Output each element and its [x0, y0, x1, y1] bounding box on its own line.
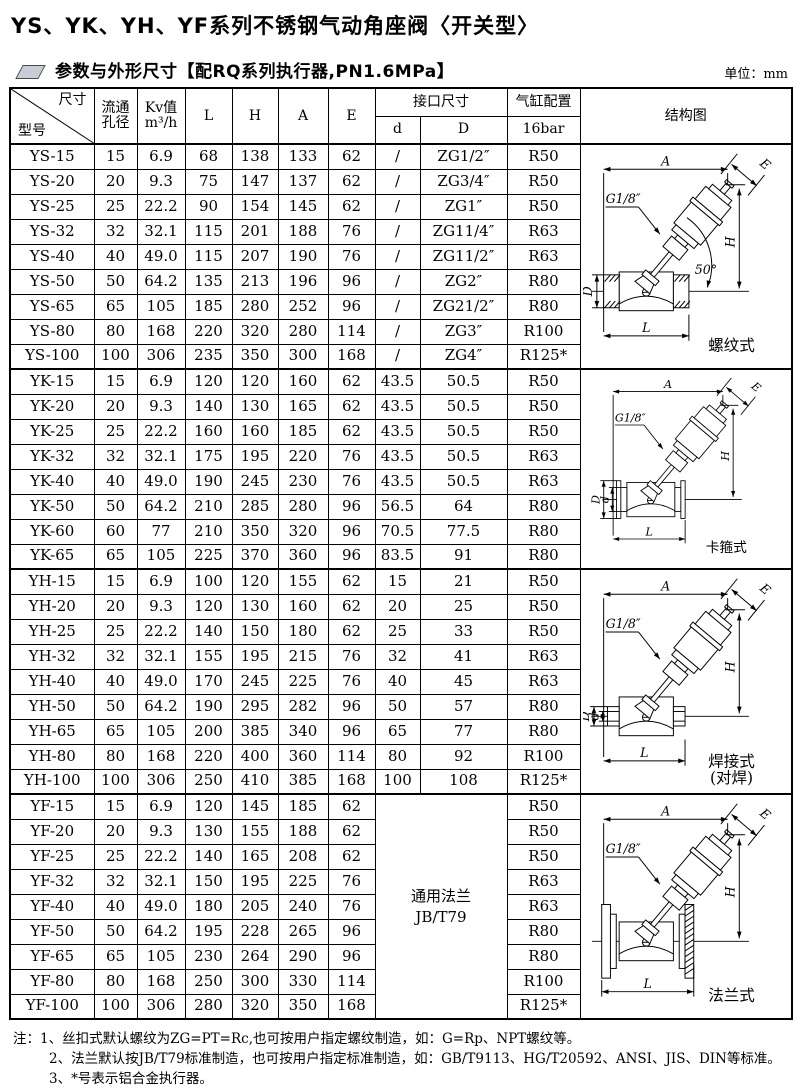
svg-text:L: L [641, 320, 650, 335]
header-cylinder: 气缸配置 [507, 88, 580, 116]
value-cell: 137 [278, 169, 328, 194]
value-cell: 130 [232, 394, 278, 419]
table-row: YS-15156.96813813362/ZG1/2″R50AEHG1/8″50… [10, 144, 792, 169]
value-cell: 65 [375, 719, 420, 744]
value-cell: 20 [94, 394, 137, 419]
value-cell: 15 [94, 144, 137, 169]
value-cell: 96 [328, 269, 375, 294]
value-cell: 350 [232, 344, 278, 369]
value-cell: 32 [94, 869, 137, 894]
value-cell: 76 [328, 894, 375, 919]
value-cell: 190 [278, 244, 328, 269]
value-cell: 22.2 [137, 419, 185, 444]
model-cell: YK-40 [10, 469, 94, 494]
model-cell: YS-80 [10, 319, 94, 344]
value-cell: 180 [185, 894, 232, 919]
value-cell: 350 [278, 994, 328, 1019]
value-cell: 80 [94, 969, 137, 994]
value-cell: 160 [185, 419, 232, 444]
svg-text:d: d [598, 496, 611, 503]
value-cell: 230 [185, 944, 232, 969]
value-cell: 205 [232, 894, 278, 919]
value-cell: 50 [94, 919, 137, 944]
value-cell: 385 [278, 769, 328, 794]
merged-flange-line: JB/T79 [376, 907, 507, 927]
value-cell: 250 [185, 969, 232, 994]
value-cell: ZG4″ [420, 344, 507, 369]
value-cell: 320 [232, 319, 278, 344]
value-cell: R80 [507, 944, 580, 969]
value-cell: / [375, 244, 420, 269]
value-cell: 96 [328, 519, 375, 544]
value-cell: 80 [375, 744, 420, 769]
value-cell: 133 [278, 144, 328, 169]
parallelogram-icon [15, 65, 45, 79]
value-cell: 320 [278, 519, 328, 544]
value-cell: 62 [328, 394, 375, 419]
value-cell: 114 [328, 969, 375, 994]
value-cell: R63 [507, 219, 580, 244]
value-cell: 360 [278, 544, 328, 569]
value-cell: R80 [507, 294, 580, 319]
value-cell: 49.0 [137, 244, 185, 269]
value-cell: 76 [328, 219, 375, 244]
value-cell: 155 [232, 819, 278, 844]
header-model-size-cell: 尺寸 型号 [10, 88, 94, 144]
value-cell: 165 [278, 394, 328, 419]
value-cell: 306 [137, 344, 185, 369]
value-cell: 60 [94, 519, 137, 544]
valve-drawing: AEHG1/8″DdL焊接式(对焊) [583, 571, 789, 788]
value-cell: 300 [278, 344, 328, 369]
value-cell: ZG3/4″ [420, 169, 507, 194]
value-cell: R50 [507, 794, 580, 819]
value-cell: 70.5 [375, 519, 420, 544]
structure-diagram-flange: AEHG1/8″L法兰式 [580, 794, 792, 1019]
model-cell: YK-65 [10, 544, 94, 569]
value-cell: 6.9 [137, 569, 185, 594]
value-cell: 150 [185, 869, 232, 894]
value-cell: 32.1 [137, 869, 185, 894]
header-flow: 流通 孔径 [94, 88, 137, 144]
header-model-label: 型号 [18, 124, 46, 139]
svg-text:(对焊): (对焊) [710, 769, 753, 787]
value-cell: 168 [328, 769, 375, 794]
value-cell: 330 [278, 969, 328, 994]
value-cell: 49.0 [137, 669, 185, 694]
value-cell: 80 [94, 744, 137, 769]
value-cell: 9.3 [137, 169, 185, 194]
value-cell: 76 [328, 669, 375, 694]
model-cell: YK-32 [10, 444, 94, 469]
value-cell: R63 [507, 644, 580, 669]
value-cell: 62 [328, 419, 375, 444]
svg-text:L: L [639, 745, 648, 760]
model-cell: YF-50 [10, 919, 94, 944]
value-cell: 196 [278, 269, 328, 294]
value-cell: 15 [94, 569, 137, 594]
value-cell: 65 [94, 544, 137, 569]
model-cell: YF-15 [10, 794, 94, 819]
value-cell: 154 [232, 194, 278, 219]
header-size-label: 尺寸 [59, 93, 87, 108]
value-cell: 100 [185, 569, 232, 594]
value-cell: 21 [420, 569, 507, 594]
value-cell: 385 [232, 719, 278, 744]
value-cell: 25 [94, 844, 137, 869]
value-cell: 90 [185, 194, 232, 219]
value-cell: 50 [94, 694, 137, 719]
value-cell: 96 [328, 919, 375, 944]
value-cell: 96 [328, 494, 375, 519]
value-cell: 195 [232, 444, 278, 469]
model-cell: YF-65 [10, 944, 94, 969]
value-cell: 62 [328, 844, 375, 869]
value-cell: ZG21/2″ [420, 294, 507, 319]
model-cell: YH-50 [10, 694, 94, 719]
value-cell: 120 [185, 794, 232, 819]
value-cell: 25 [94, 619, 137, 644]
value-cell: 64 [420, 494, 507, 519]
value-cell: 120 [185, 594, 232, 619]
value-cell: 105 [137, 544, 185, 569]
table-row: YH-15156.9100120155621521R50AEHG1/8″DdL焊… [10, 569, 792, 594]
value-cell: 225 [278, 869, 328, 894]
value-cell: 32 [94, 644, 137, 669]
model-cell: YH-100 [10, 769, 94, 794]
value-cell: 370 [232, 544, 278, 569]
value-cell: / [375, 269, 420, 294]
value-cell: 15 [94, 794, 137, 819]
value-cell: 155 [278, 569, 328, 594]
value-cell: 147 [232, 169, 278, 194]
value-cell: R80 [507, 494, 580, 519]
value-cell: 350 [232, 519, 278, 544]
value-cell: 210 [185, 494, 232, 519]
svg-text:A: A [663, 378, 672, 391]
value-cell: 264 [232, 944, 278, 969]
svg-text:L: L [644, 526, 652, 539]
header-H: H [232, 88, 278, 144]
value-cell: 360 [278, 744, 328, 769]
value-cell: 43.5 [375, 469, 420, 494]
value-cell: 130 [185, 819, 232, 844]
value-cell: 120 [185, 369, 232, 394]
model-cell: YS-65 [10, 294, 94, 319]
value-cell: 64.2 [137, 919, 185, 944]
model-cell: YS-100 [10, 344, 94, 369]
value-cell: R50 [507, 394, 580, 419]
value-cell: R50 [507, 369, 580, 394]
value-cell: 62 [328, 819, 375, 844]
value-cell: R63 [507, 869, 580, 894]
value-cell: 120 [232, 569, 278, 594]
value-cell: 100 [94, 769, 137, 794]
value-cell: 100 [94, 994, 137, 1019]
value-cell: R63 [507, 244, 580, 269]
value-cell: 68 [185, 144, 232, 169]
value-cell: 175 [185, 444, 232, 469]
value-cell: 100 [94, 344, 137, 369]
structure-diagram-weld: AEHG1/8″DdL焊接式(对焊) [580, 569, 792, 794]
value-cell: 228 [232, 919, 278, 944]
header-L: L [185, 88, 232, 144]
value-cell: ZG3″ [420, 319, 507, 344]
value-cell: 50.5 [420, 419, 507, 444]
value-cell: 165 [232, 844, 278, 869]
value-cell: / [375, 319, 420, 344]
value-cell: 160 [278, 369, 328, 394]
value-cell: 210 [185, 519, 232, 544]
value-cell: R50 [507, 144, 580, 169]
value-cell: R50 [507, 819, 580, 844]
value-cell: 220 [278, 444, 328, 469]
value-cell: 50 [94, 494, 137, 519]
value-cell: 130 [232, 594, 278, 619]
value-cell: 168 [328, 994, 375, 1019]
svg-text:H: H [719, 451, 732, 462]
value-cell: 306 [137, 994, 185, 1019]
value-cell: 96 [328, 544, 375, 569]
value-cell: 245 [232, 469, 278, 494]
value-cell: / [375, 219, 420, 244]
model-cell: YH-32 [10, 644, 94, 669]
value-cell: 145 [278, 194, 328, 219]
value-cell: 50.5 [420, 469, 507, 494]
value-cell: 43.5 [375, 444, 420, 469]
value-cell: R80 [507, 544, 580, 569]
value-cell: 9.3 [137, 394, 185, 419]
value-cell: 185 [278, 794, 328, 819]
value-cell: 185 [278, 419, 328, 444]
value-cell: 32.1 [137, 444, 185, 469]
svg-text:L: L [642, 976, 651, 991]
value-cell: 50 [375, 694, 420, 719]
value-cell: R80 [507, 694, 580, 719]
header-A: A [278, 88, 328, 144]
value-cell: 76 [328, 244, 375, 269]
value-cell: ZG11/4″ [420, 219, 507, 244]
value-cell: R50 [507, 419, 580, 444]
value-cell: 64.2 [137, 694, 185, 719]
value-cell: 25 [420, 594, 507, 619]
model-cell: YH-25 [10, 619, 94, 644]
header-port-size: 接口尺寸 [375, 88, 507, 116]
value-cell: R63 [507, 894, 580, 919]
value-cell: 96 [328, 694, 375, 719]
value-cell: 32 [94, 444, 137, 469]
value-cell: 32 [375, 644, 420, 669]
svg-text:H: H [722, 661, 737, 674]
value-cell: 188 [278, 819, 328, 844]
value-cell: 65 [94, 944, 137, 969]
model-cell: YF-32 [10, 869, 94, 894]
value-cell: 62 [328, 794, 375, 819]
value-cell: R50 [507, 594, 580, 619]
value-cell: 62 [328, 594, 375, 619]
model-cell: YF-100 [10, 994, 94, 1019]
value-cell: 41 [420, 644, 507, 669]
value-cell: R80 [507, 719, 580, 744]
note-line: 2、法兰默认按JB/T79标准制造，也可按用户指定标准制造，如：GB/T9113… [13, 1049, 791, 1069]
value-cell: 168 [137, 969, 185, 994]
model-cell: YH-80 [10, 744, 94, 769]
value-cell: 22.2 [137, 619, 185, 644]
value-cell: 290 [278, 944, 328, 969]
header-kv-line2: m³/h [145, 115, 178, 131]
value-cell: 252 [278, 294, 328, 319]
value-cell: 100 [375, 769, 420, 794]
merged-flange-cell: 通用法兰JB/T79 [375, 794, 507, 1019]
value-cell: R125* [507, 769, 580, 794]
header-flow-line1: 流通 [102, 100, 130, 116]
value-cell: 33 [420, 619, 507, 644]
value-cell: 280 [278, 494, 328, 519]
value-cell: 96 [328, 944, 375, 969]
value-cell: 160 [232, 419, 278, 444]
value-cell: R100 [507, 969, 580, 994]
model-cell: YK-25 [10, 419, 94, 444]
value-cell: 32 [94, 219, 137, 244]
value-cell: 207 [232, 244, 278, 269]
value-cell: R50 [507, 194, 580, 219]
value-cell: R100 [507, 744, 580, 769]
svg-text:E: E [748, 379, 763, 395]
value-cell: 155 [185, 644, 232, 669]
value-cell: 235 [185, 344, 232, 369]
value-cell: 225 [185, 544, 232, 569]
model-cell: YS-40 [10, 244, 94, 269]
svg-text:螺纹式: 螺纹式 [708, 337, 755, 355]
svg-text:法兰式: 法兰式 [708, 987, 755, 1005]
value-cell: 77.5 [420, 519, 507, 544]
value-cell: 22.2 [137, 844, 185, 869]
value-cell: 220 [185, 319, 232, 344]
table-row: YK-15156.91201201606243.550.5R50AEHG1/8″… [10, 369, 792, 394]
value-cell: 230 [278, 469, 328, 494]
header-flow-line2: 孔径 [102, 115, 130, 131]
header-row-1: 尺寸 型号 流通 孔径 Kv值 m³/h L H A E 接口尺寸 气缸配置 结… [10, 88, 792, 116]
value-cell: 168 [137, 319, 185, 344]
value-cell: R63 [507, 469, 580, 494]
model-cell: YS-25 [10, 194, 94, 219]
value-cell: 40 [94, 669, 137, 694]
svg-text:50°: 50° [694, 262, 716, 277]
value-cell: 40 [94, 894, 137, 919]
value-cell: 32.1 [137, 219, 185, 244]
value-cell: 43.5 [375, 394, 420, 419]
value-cell: 20 [94, 819, 137, 844]
valve-drawing: AEHG1/8″DdL卡箍式 [583, 371, 789, 563]
value-cell: 25 [94, 419, 137, 444]
value-cell: / [375, 194, 420, 219]
value-cell: ZG11/2″ [420, 244, 507, 269]
merged-flange-line: 通用法兰 [376, 886, 507, 906]
note-line: 3、*号表示铝合金执行器。 [13, 1069, 791, 1089]
value-cell: 40 [94, 469, 137, 494]
value-cell: 160 [278, 594, 328, 619]
model-cell: YH-65 [10, 719, 94, 744]
model-cell: YF-80 [10, 969, 94, 994]
value-cell: 188 [278, 219, 328, 244]
value-cell: 285 [232, 494, 278, 519]
value-cell: 6.9 [137, 369, 185, 394]
value-cell: 105 [137, 719, 185, 744]
value-cell: 50.5 [420, 369, 507, 394]
svg-text:A: A [660, 579, 670, 594]
svg-text:G1/8″: G1/8″ [605, 841, 640, 856]
value-cell: 43.5 [375, 369, 420, 394]
value-cell: 168 [328, 344, 375, 369]
value-cell: 62 [328, 194, 375, 219]
value-cell: R100 [507, 319, 580, 344]
notes: 注：1、丝扣式默认螺纹为ZG=PT=Rc,也可按用户指定螺纹制造，如：G=Rp、… [9, 1029, 791, 1089]
header-cylinder-sub: 16bar [507, 116, 580, 144]
value-cell: 40 [94, 244, 137, 269]
svg-text:E: E [756, 155, 773, 173]
model-cell: YS-15 [10, 144, 94, 169]
value-cell: 145 [232, 794, 278, 819]
model-cell: YK-60 [10, 519, 94, 544]
value-cell: 62 [328, 619, 375, 644]
value-cell: R50 [507, 169, 580, 194]
model-cell: YF-40 [10, 894, 94, 919]
model-cell: YH-40 [10, 669, 94, 694]
value-cell: 195 [232, 644, 278, 669]
value-cell: 49.0 [137, 469, 185, 494]
value-cell: 215 [278, 644, 328, 669]
value-cell: 62 [328, 369, 375, 394]
value-cell: 25 [94, 194, 137, 219]
value-cell: 200 [185, 719, 232, 744]
value-cell: 140 [185, 394, 232, 419]
value-cell: 190 [185, 694, 232, 719]
value-cell: R50 [507, 844, 580, 869]
value-cell: 65 [94, 719, 137, 744]
value-cell: 180 [278, 619, 328, 644]
value-cell: 220 [185, 744, 232, 769]
value-cell: 240 [278, 894, 328, 919]
value-cell: 140 [185, 619, 232, 644]
value-cell: 62 [328, 569, 375, 594]
value-cell: 40 [375, 669, 420, 694]
value-cell: 300 [232, 969, 278, 994]
svg-text:A: A [660, 154, 670, 169]
model-cell: YH-15 [10, 569, 94, 594]
value-cell: 15 [375, 569, 420, 594]
value-cell: 195 [232, 869, 278, 894]
value-cell: 57 [420, 694, 507, 719]
value-cell: 280 [232, 294, 278, 319]
value-cell: 115 [185, 219, 232, 244]
model-cell: YK-20 [10, 394, 94, 419]
value-cell: 22.2 [137, 194, 185, 219]
value-cell: 208 [278, 844, 328, 869]
value-cell: 80 [94, 319, 137, 344]
value-cell: R63 [507, 444, 580, 469]
catalog-page: YS、YK、YH、YF系列不锈钢气动角座阀〈开关型〉 参数与外形尺寸【配RQ系列… [0, 0, 800, 1087]
page-title: YS、YK、YH、YF系列不锈钢气动角座阀〈开关型〉 [9, 8, 791, 40]
value-cell: 62 [328, 144, 375, 169]
value-cell: R50 [507, 569, 580, 594]
value-cell: 9.3 [137, 819, 185, 844]
value-cell: 170 [185, 669, 232, 694]
structure-diagram-clamp: AEHG1/8″DdL卡箍式 [580, 369, 792, 569]
value-cell: 62 [328, 169, 375, 194]
header-E: E [328, 88, 375, 144]
svg-text:G1/8″: G1/8″ [605, 191, 640, 206]
value-cell: 32.1 [137, 644, 185, 669]
